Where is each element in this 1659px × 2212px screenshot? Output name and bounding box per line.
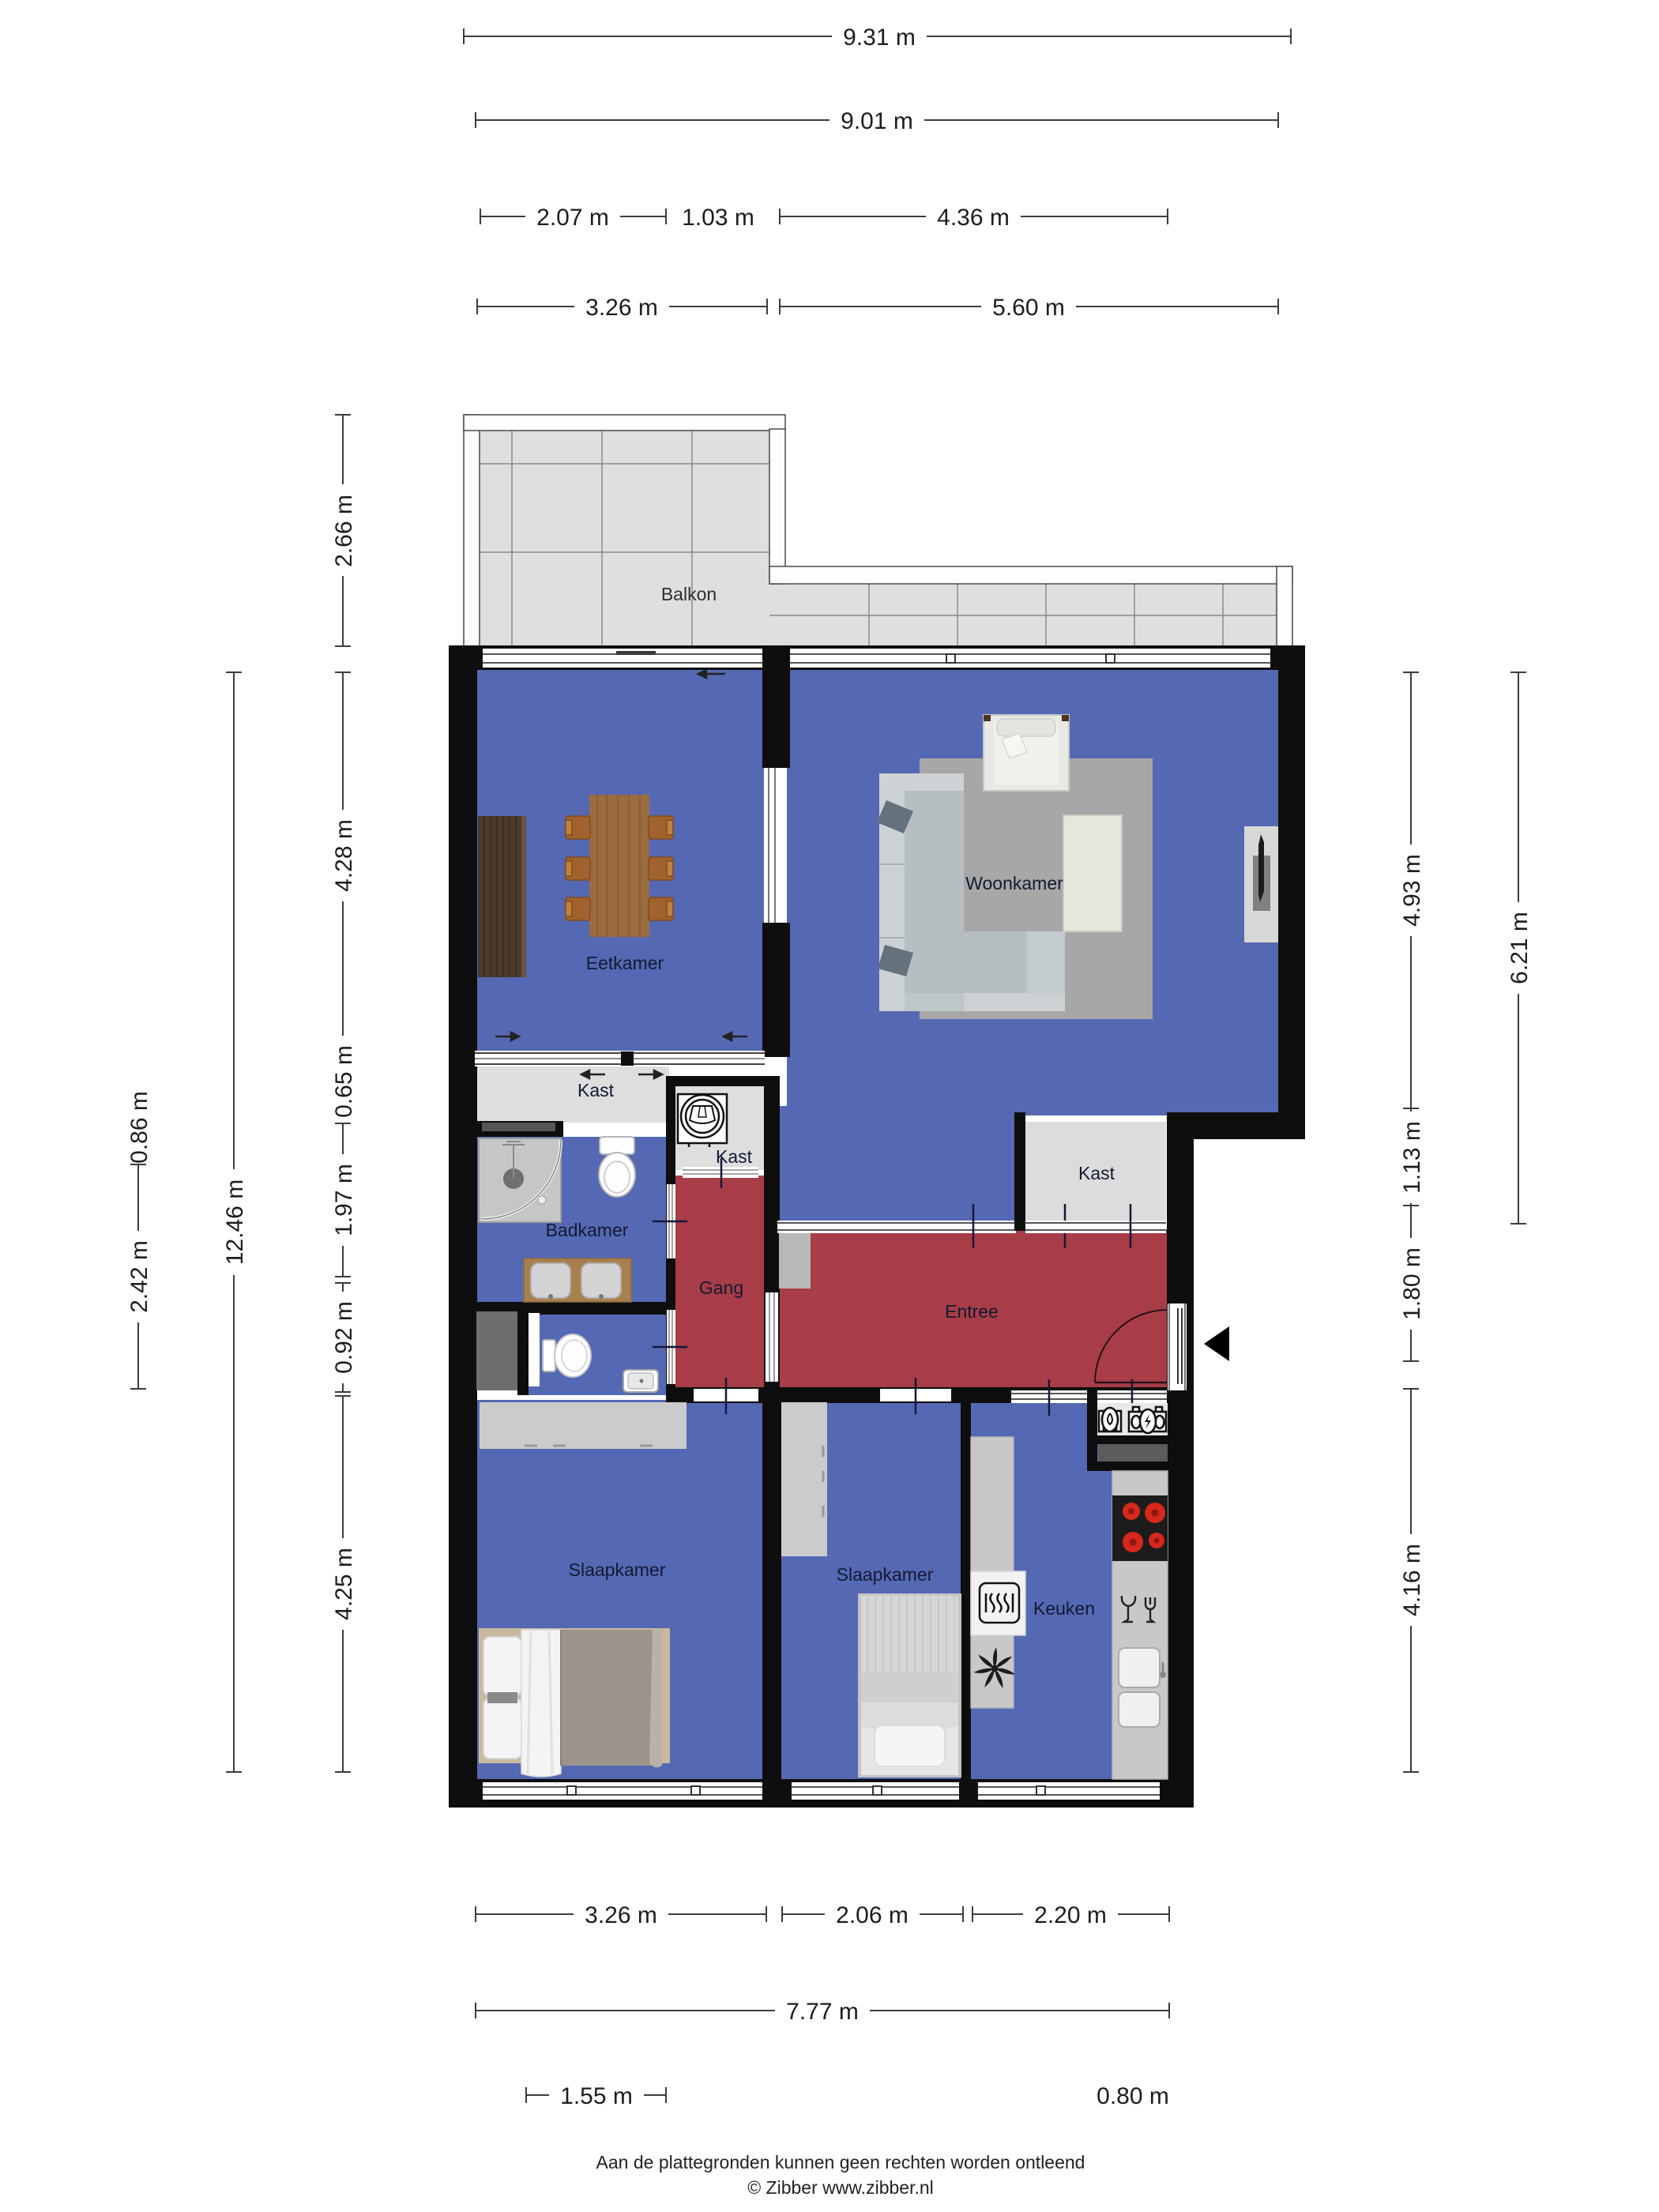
svg-text:Balkon: Balkon [661, 584, 717, 604]
svg-text:2.66 m: 2.66 m [331, 495, 357, 567]
svg-text:4.36 m: 4.36 m [937, 205, 1010, 231]
svg-text:1.03 m: 1.03 m [682, 205, 754, 231]
svg-text:Slaapkamer: Slaapkamer [569, 1559, 666, 1580]
svg-text:Badkamer: Badkamer [546, 1220, 629, 1240]
svg-text:4.16 m: 4.16 m [1399, 1544, 1425, 1616]
svg-text:5.60 m: 5.60 m [992, 295, 1065, 321]
svg-text:9.31 m: 9.31 m [843, 24, 916, 51]
svg-text:7.77 m: 7.77 m [786, 1999, 859, 2025]
svg-text:0.92 m: 0.92 m [331, 1301, 357, 1374]
svg-text:0.65 m: 0.65 m [331, 1045, 357, 1118]
svg-text:2.20 m: 2.20 m [1034, 1902, 1107, 1928]
svg-text:4.28 m: 4.28 m [331, 819, 357, 892]
svg-text:Woonkamer: Woonkamer [965, 873, 1063, 893]
svg-text:4.93 m: 4.93 m [1399, 854, 1425, 927]
svg-text:2.42 m: 2.42 m [126, 1240, 152, 1313]
svg-text:Eetkamer: Eetkamer [586, 953, 664, 973]
svg-text:Kast: Kast [716, 1146, 753, 1167]
svg-text:Slaapkamer: Slaapkamer [837, 1564, 934, 1585]
svg-text:0.80 m: 0.80 m [1097, 2083, 1169, 2109]
svg-text:9.01 m: 9.01 m [841, 108, 913, 134]
svg-text:1.97 m: 1.97 m [331, 1164, 357, 1236]
svg-text:Gang: Gang [699, 1277, 743, 1298]
svg-text:Kast: Kast [577, 1080, 615, 1100]
svg-text:1.13 m: 1.13 m [1399, 1121, 1425, 1194]
svg-text:3.26 m: 3.26 m [585, 295, 658, 321]
svg-text:Entree: Entree [945, 1301, 999, 1322]
svg-text:12.46 m: 12.46 m [222, 1179, 248, 1265]
svg-text:1.55 m: 1.55 m [560, 2083, 633, 2109]
svg-text:1.80 m: 1.80 m [1399, 1247, 1425, 1320]
svg-text:Keuken: Keuken [1033, 1598, 1095, 1619]
svg-text:2.07 m: 2.07 m [536, 205, 609, 231]
svg-text:© Zibber www.zibber.nl: © Zibber www.zibber.nl [747, 2177, 934, 2198]
svg-text:0.86 m: 0.86 m [126, 1091, 152, 1164]
svg-text:4.25 m: 4.25 m [331, 1548, 357, 1620]
svg-text:6.21 m: 6.21 m [1507, 912, 1533, 984]
svg-text:Aan de plattegronden kunnen ge: Aan de plattegronden kunnen geen rechten… [596, 2152, 1085, 2172]
svg-text:Kast: Kast [1078, 1163, 1115, 1183]
svg-text:3.26 m: 3.26 m [585, 1902, 657, 1928]
svg-text:2.06 m: 2.06 m [836, 1902, 908, 1928]
